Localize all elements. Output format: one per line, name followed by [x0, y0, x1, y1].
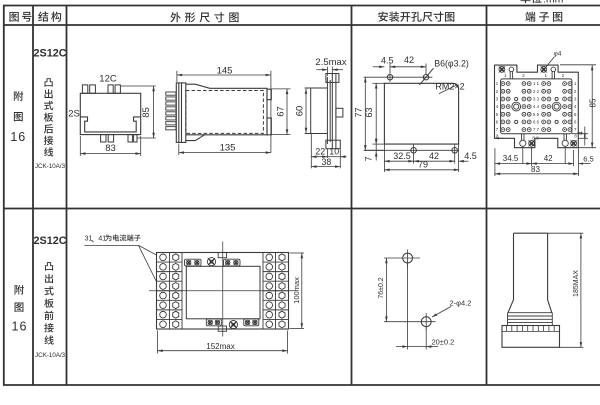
svg-text::mm: :mm [543, 0, 564, 6]
svg-text:4.5: 4.5 [464, 151, 477, 161]
svg-text:42: 42 [404, 55, 414, 65]
svg-text:10: 10 [329, 147, 339, 157]
svg-text:20±0.2: 20±0.2 [431, 337, 454, 346]
svg-text:85: 85 [141, 107, 152, 118]
svg-text:4.5: 4.5 [381, 55, 394, 65]
svg-text:79: 79 [418, 160, 428, 170]
svg-text:2.5max: 2.5max [315, 57, 346, 68]
svg-text:32.5: 32.5 [393, 151, 411, 161]
svg-text:16: 16 [12, 319, 28, 333]
svg-text:83: 83 [105, 143, 116, 154]
svg-text:4: 4 [577, 131, 584, 135]
svg-text:85: 85 [588, 98, 597, 107]
svg-text:41: 41 [98, 234, 106, 243]
svg-text:2-φ4.2: 2-φ4.2 [450, 299, 472, 308]
svg-text:2S12C: 2S12C [33, 47, 66, 59]
svg-text:100max: 100max [292, 277, 301, 304]
svg-text:152max: 152max [206, 342, 234, 351]
svg-text:83: 83 [531, 165, 540, 174]
svg-text:2S: 2S [68, 108, 80, 119]
svg-text:16: 16 [10, 130, 26, 144]
svg-text:185MAX: 185MAX [573, 270, 580, 297]
svg-text:6.5: 6.5 [583, 154, 593, 163]
svg-text:JCK-10A/3: JCK-10A/3 [35, 352, 66, 359]
svg-text:42: 42 [429, 151, 439, 161]
svg-text:7: 7 [364, 156, 374, 161]
svg-text:67: 67 [275, 106, 286, 117]
svg-text:34.5: 34.5 [503, 154, 519, 163]
svg-text:63: 63 [364, 107, 374, 117]
svg-text:RM2×2: RM2×2 [435, 82, 464, 92]
svg-text:12C: 12C [99, 73, 117, 84]
svg-text:76±0.2: 76±0.2 [378, 277, 385, 298]
svg-text:B6(φ3.2): B6(φ3.2) [434, 59, 469, 69]
svg-text:22: 22 [315, 147, 325, 157]
svg-text:38: 38 [322, 157, 332, 167]
svg-text:60: 60 [295, 106, 306, 117]
svg-text:JCK-10A/3: JCK-10A/3 [35, 163, 66, 170]
svg-text:2S12C: 2S12C [33, 235, 66, 247]
svg-text:31: 31 [85, 234, 93, 243]
svg-text:145: 145 [217, 65, 233, 76]
svg-text:φ4: φ4 [554, 51, 562, 58]
svg-text:77: 77 [353, 107, 363, 117]
svg-text:135: 135 [220, 143, 236, 154]
svg-text:42: 42 [544, 154, 553, 163]
